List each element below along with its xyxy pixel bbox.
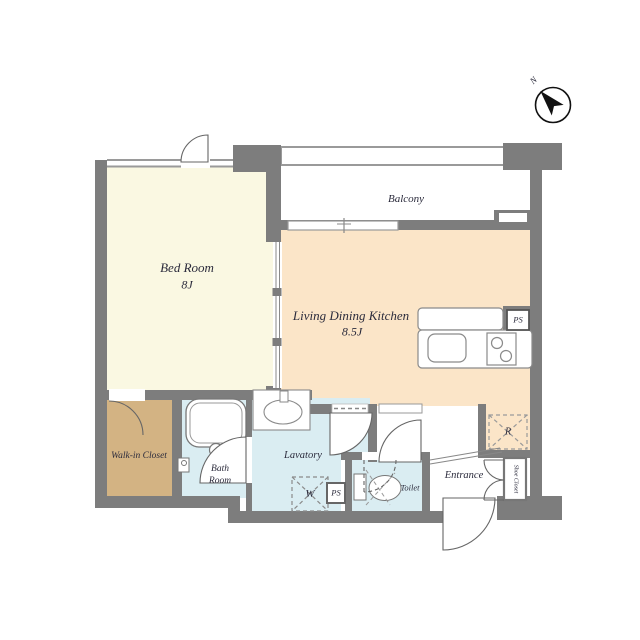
bath-mixer-icon xyxy=(178,458,189,472)
washing-machine-label: W xyxy=(305,488,314,500)
compass xyxy=(534,86,570,123)
lavatory-label: Lavatory xyxy=(284,450,322,462)
hall-doorway xyxy=(379,404,422,413)
entrance-label: Entrance xyxy=(445,470,484,482)
bath-door-opening xyxy=(246,437,252,483)
bath-room-label-line2: Room xyxy=(209,476,231,486)
pillar-top-right xyxy=(503,143,562,170)
bedroom-sliding-partition xyxy=(273,242,283,388)
balcony-slot xyxy=(499,213,527,222)
wall-bedroom-ldk-upper xyxy=(266,166,281,242)
wic-door-opening xyxy=(109,389,145,401)
wall-bottom-mid xyxy=(240,511,443,523)
wall-wic-bath xyxy=(172,390,182,496)
wall-nook-left xyxy=(478,404,486,452)
shoe-closet-doors xyxy=(484,460,504,500)
balcony-sliding-window xyxy=(288,221,398,230)
walk-in-closet-floor xyxy=(101,392,178,498)
walk-in-closet-label: Walk-in Closet xyxy=(111,451,167,461)
floor-plan: Bed Room 8J Living Dining Kitchen 8.5J B… xyxy=(0,0,640,640)
washbasin-icon xyxy=(253,390,310,430)
ldk-size: 8.5J xyxy=(342,325,362,338)
shoe-closet-label: Shoe Closet xyxy=(512,465,519,494)
kitchen-sink-icon xyxy=(428,334,466,362)
bedroom-exterior-door xyxy=(181,135,208,162)
bedroom-size: 8J xyxy=(181,278,192,291)
wall-bottom-left xyxy=(95,496,240,508)
bath-room-label-line1: Bath xyxy=(211,464,229,474)
toilet-label: Toilet xyxy=(400,483,419,492)
kitchen-stove-icon xyxy=(487,333,516,365)
bedroom-label: Bed Room xyxy=(160,261,214,275)
wall-bottom-step xyxy=(228,496,240,523)
balcony-label: Balcony xyxy=(388,193,424,205)
wall-left xyxy=(95,160,107,508)
pipe-space-kitchen-label: PS xyxy=(513,315,522,324)
ldk-label: Living Dining Kitchen xyxy=(293,309,409,323)
pipe-space-lavatory-label: PS xyxy=(331,488,340,497)
refrigerator-label: R xyxy=(505,427,511,438)
bedroom-window xyxy=(107,159,233,168)
wall-toilet-right xyxy=(422,452,430,511)
balcony-outline xyxy=(280,146,504,166)
wall-toilet-left xyxy=(345,452,352,511)
hall-door xyxy=(379,420,421,462)
entrance-door xyxy=(443,498,495,550)
